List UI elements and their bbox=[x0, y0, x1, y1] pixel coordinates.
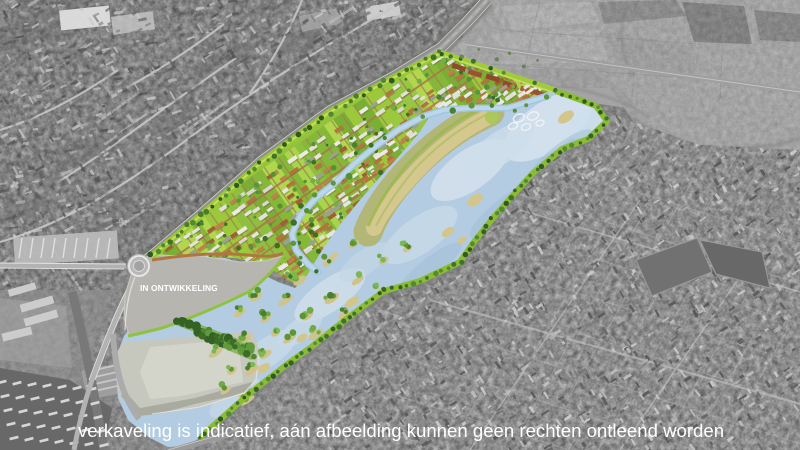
svg-text:IN ONTWIKKELING: IN ONTWIKKELING bbox=[140, 283, 218, 293]
svg-text:verkaveling is indicatief, aán: verkaveling is indicatief, aán afbeeldin… bbox=[78, 420, 724, 441]
